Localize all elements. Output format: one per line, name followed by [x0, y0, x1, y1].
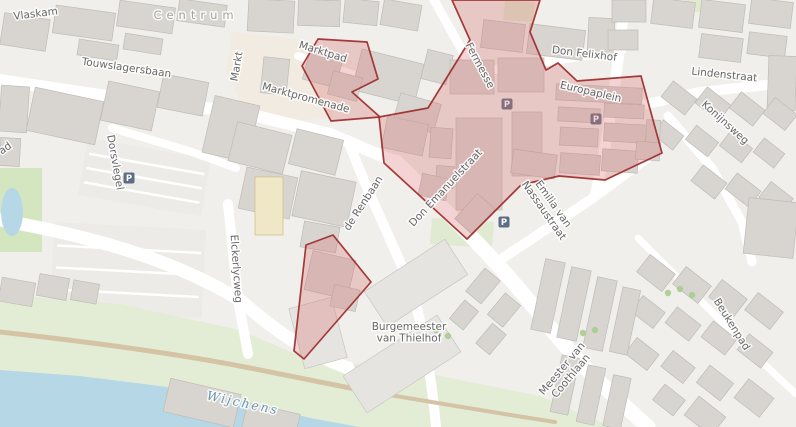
pond-water	[1, 188, 23, 236]
building	[70, 280, 99, 304]
map-canvas[interactable]: PPPPVlaskamCentrumTouwslagersbaanMarktMa…	[0, 0, 796, 427]
parking-icon: P	[499, 217, 510, 229]
tree-icon	[592, 327, 598, 333]
tree-icon	[677, 286, 683, 292]
tree-icon	[580, 330, 586, 336]
place-label-centrum: Centrum	[153, 8, 238, 22]
building	[698, 0, 745, 33]
tree-icon	[689, 292, 695, 298]
building	[699, 34, 744, 63]
building	[247, 0, 295, 33]
building	[743, 198, 796, 259]
svg-text:P: P	[501, 218, 507, 228]
svg-text:P: P	[126, 174, 132, 184]
tree-icon	[445, 333, 451, 339]
building	[0, 85, 30, 133]
building	[608, 30, 638, 50]
building	[343, 0, 379, 26]
building	[612, 0, 646, 22]
street-label-burgemeester-van-thielhof: Burgemeestervan Thielhof	[372, 321, 447, 345]
building	[36, 274, 69, 301]
building	[255, 177, 283, 235]
building	[298, 0, 341, 27]
building	[747, 32, 787, 58]
map-viewport[interactable]: PPPPVlaskamCentrumTouwslagersbaanMarktMa…	[0, 0, 796, 427]
building	[651, 0, 696, 28]
tree-icon	[665, 290, 671, 296]
building	[749, 0, 794, 28]
